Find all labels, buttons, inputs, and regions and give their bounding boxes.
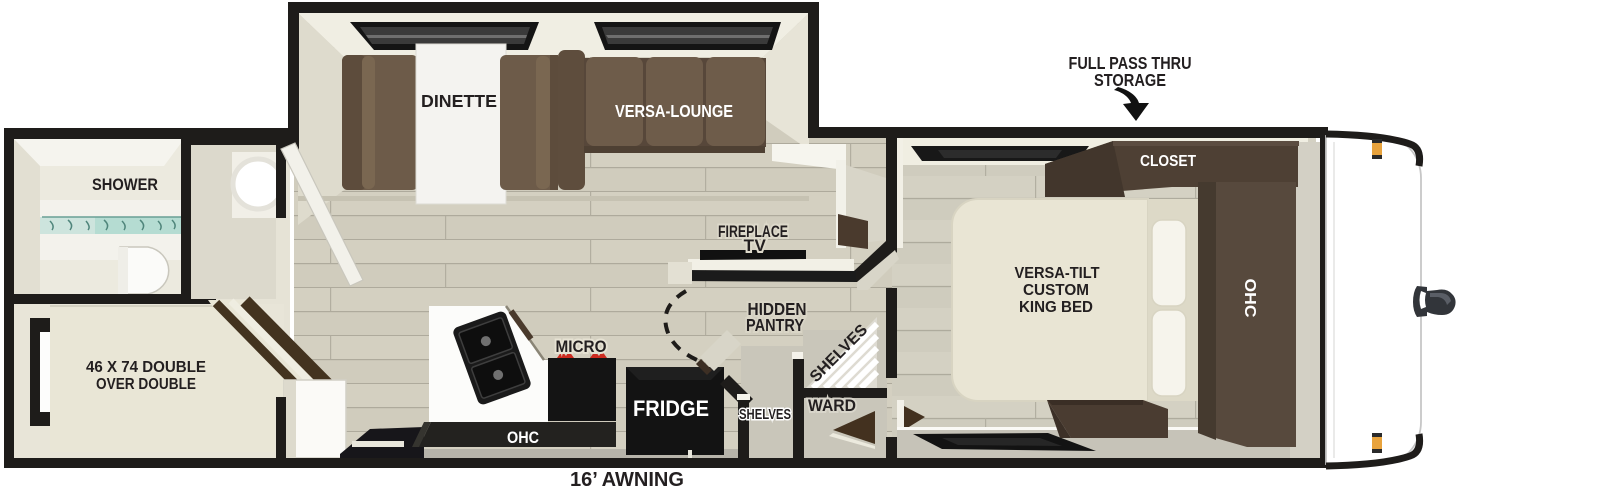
svg-text:TV: TV xyxy=(744,236,767,255)
svg-text:CLOSET: CLOSET xyxy=(1140,153,1196,170)
svg-text:FRIDGE: FRIDGE xyxy=(633,396,709,421)
svg-text:CUSTOM: CUSTOM xyxy=(1023,282,1089,299)
svg-text:WARD: WARD xyxy=(808,397,856,415)
svg-text:OHC: OHC xyxy=(507,429,539,447)
svg-text:DINETTE: DINETTE xyxy=(421,91,497,111)
svg-text:16’ AWNING: 16’ AWNING xyxy=(570,469,684,488)
svg-text:VERSA-TILT: VERSA-TILT xyxy=(1015,265,1101,282)
svg-text:KING BED: KING BED xyxy=(1019,299,1093,316)
svg-text:OVER DOUBLE: OVER DOUBLE xyxy=(96,376,196,393)
svg-text:SHELVES: SHELVES xyxy=(739,406,791,423)
svg-text:PANTRY: PANTRY xyxy=(746,315,804,335)
svg-text:MICRO: MICRO xyxy=(556,338,607,356)
svg-text:46 X 74 DOUBLE: 46 X 74 DOUBLE xyxy=(86,359,206,376)
svg-text:SHOWER: SHOWER xyxy=(92,175,158,194)
svg-text:STORAGE: STORAGE xyxy=(1094,70,1166,90)
svg-text:VERSA-LOUNGE: VERSA-LOUNGE xyxy=(615,101,733,121)
svg-text:OHC: OHC xyxy=(1241,279,1258,318)
